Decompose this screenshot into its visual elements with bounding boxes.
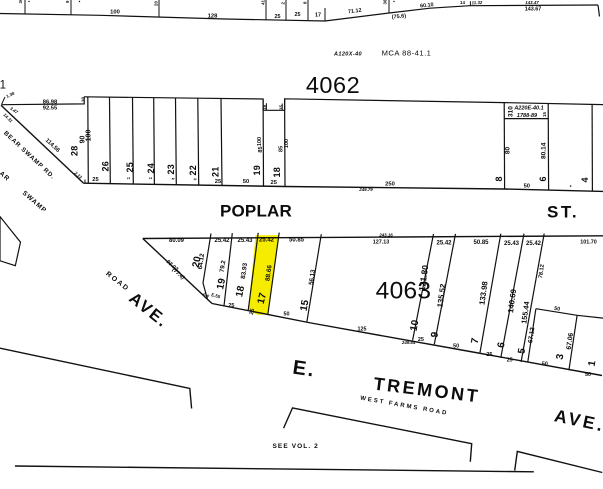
svg-text:36: 36: [18, 0, 23, 4]
svg-text:100: 100: [86, 130, 93, 142]
svg-text:A220E-40.1: A220E-40.1: [513, 106, 543, 112]
svg-text:50: 50: [554, 306, 561, 313]
svg-text:″: ″: [171, 178, 174, 185]
svg-text:100: 100: [284, 139, 290, 148]
svg-text:15: 15: [542, 112, 547, 117]
svg-text:36: 36: [383, 0, 388, 5]
svg-text:17: 17: [315, 13, 321, 19]
svg-text:249.79: 249.79: [358, 187, 373, 192]
svg-text:(75.6): (75.6): [391, 13, 406, 20]
svg-text:25: 25: [215, 179, 222, 185]
svg-text:25.42: 25.42: [259, 238, 275, 244]
svg-text:26: 26: [101, 161, 111, 171]
svg-text:80.09: 80.09: [169, 238, 185, 244]
svg-text:249.84: 249.84: [401, 340, 416, 345]
svg-text:10: 10: [80, 97, 85, 102]
svg-text:24: 24: [146, 163, 156, 173]
svg-text:″: ″: [127, 177, 130, 184]
svg-text:50: 50: [524, 183, 530, 189]
svg-text:14: 14: [460, 0, 465, 5]
svg-text:25.42: 25.42: [436, 241, 452, 247]
svg-text:E.: E.: [291, 357, 317, 382]
svg-text:128: 128: [208, 14, 218, 20]
svg-text:A120X-40: A120X-40: [333, 52, 362, 58]
svg-text:25: 25: [228, 303, 234, 309]
svg-text:15: 15: [278, 105, 283, 110]
svg-text:25: 25: [270, 180, 277, 186]
svg-text:101.70: 101.70: [580, 239, 597, 245]
svg-text:11.32: 11.32: [472, 0, 483, 5]
svg-text:25: 25: [418, 337, 424, 343]
svg-text:4062: 4062: [306, 72, 360, 98]
svg-text:23: 23: [166, 164, 176, 174]
svg-text:50: 50: [542, 361, 548, 367]
svg-text:25.43: 25.43: [504, 241, 520, 247]
svg-text:51: 51: [0, 80, 6, 92]
svg-text:25: 25: [275, 14, 281, 20]
svg-text:8: 8: [494, 176, 504, 181]
svg-text:50: 50: [585, 372, 591, 378]
svg-text:16: 16: [262, 104, 267, 109]
svg-text:127.13: 127.13: [373, 240, 390, 246]
svg-text:80.14: 80.14: [541, 142, 548, 159]
svg-text:19: 19: [252, 165, 262, 175]
svg-text:22: 22: [188, 165, 198, 175]
svg-text:25: 25: [92, 177, 99, 183]
svg-text:25.42: 25.42: [526, 241, 542, 247]
svg-text:SEE VOL. 2: SEE VOL. 2: [273, 443, 319, 450]
svg-text:125: 125: [358, 326, 367, 332]
svg-text:ST.: ST.: [547, 203, 579, 222]
svg-text:243.16: 243.16: [378, 232, 393, 237]
svg-text:20: 20: [154, 1, 159, 6]
svg-text:50.85: 50.85: [473, 240, 489, 246]
svg-text:21: 21: [211, 167, 221, 177]
svg-text:25: 25: [507, 357, 513, 363]
svg-text:143.67: 143.67: [525, 7, 542, 13]
svg-text:50.85: 50.85: [289, 238, 305, 244]
svg-text:28: 28: [70, 146, 80, 156]
svg-text:100: 100: [257, 137, 263, 146]
svg-text:25: 25: [295, 12, 301, 18]
svg-text:POPLAR: POPLAR: [220, 202, 292, 221]
svg-text:6: 6: [538, 176, 548, 181]
svg-text:100: 100: [110, 10, 120, 16]
svg-text:25.42: 25.42: [214, 238, 230, 244]
svg-text:50: 50: [453, 344, 459, 350]
svg-text:80: 80: [505, 147, 512, 155]
svg-text:4: 4: [580, 177, 590, 182]
svg-text:50: 50: [243, 179, 249, 185]
svg-text:MCA 88-41.1: MCA 88-41.1: [382, 49, 432, 58]
svg-text:50: 50: [284, 312, 290, 318]
svg-text:41: 41: [261, 0, 266, 5]
svg-text:1788-89: 1788-89: [517, 113, 538, 119]
svg-text:″: ″: [149, 177, 152, 184]
svg-text:25.43: 25.43: [237, 238, 253, 244]
svg-text:250: 250: [385, 182, 395, 188]
svg-text:85: 85: [258, 146, 264, 152]
svg-text:92.55: 92.55: [43, 106, 58, 112]
svg-text:″: ″: [193, 178, 196, 185]
svg-text:25: 25: [486, 352, 492, 358]
svg-text:143.47: 143.47: [525, 0, 539, 5]
svg-text:18: 18: [272, 167, 282, 177]
svg-text:25: 25: [125, 162, 135, 172]
